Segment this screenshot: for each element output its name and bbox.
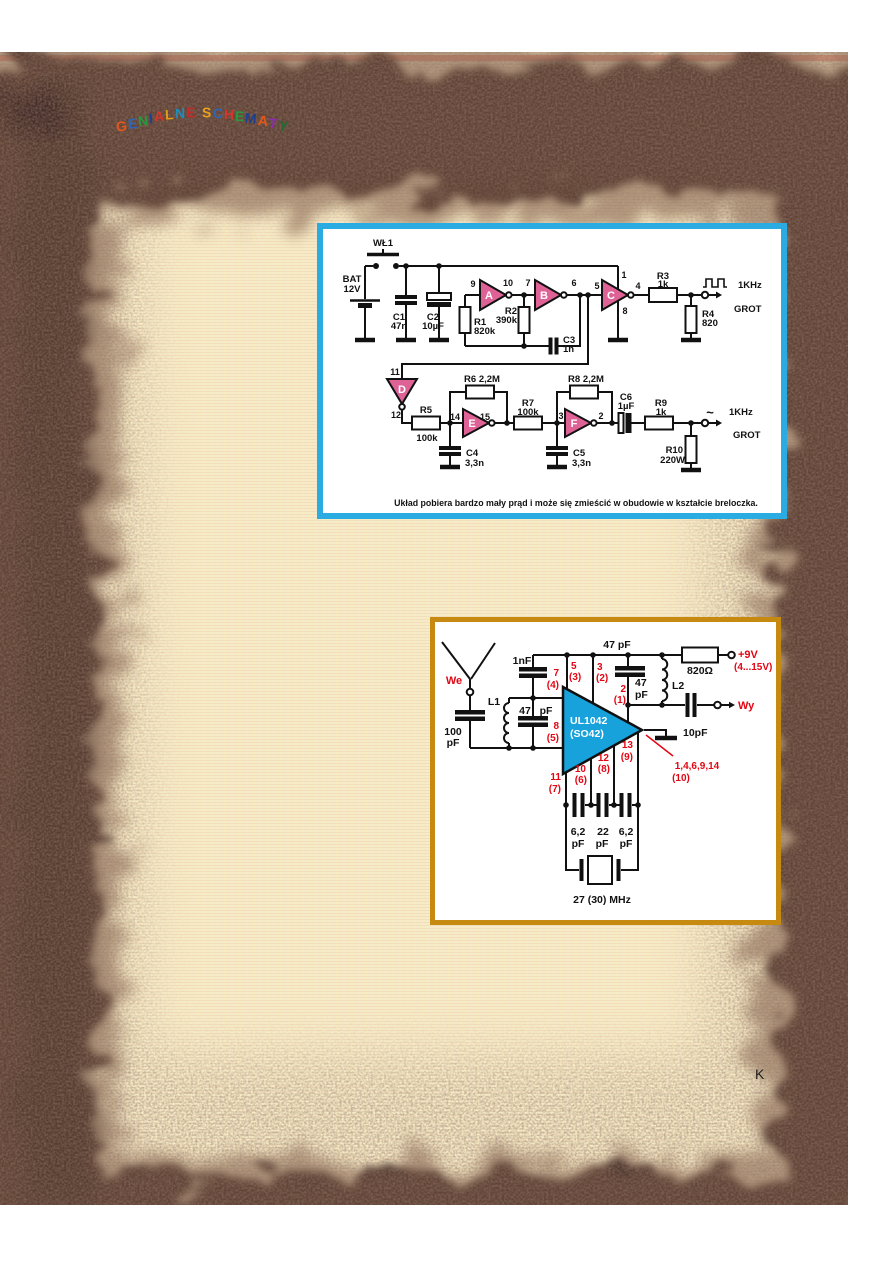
pin7-label: 7 bbox=[525, 278, 530, 288]
pin15-label: 15 bbox=[480, 412, 490, 422]
supply-terminal bbox=[728, 652, 735, 659]
output2-terminal bbox=[702, 420, 708, 426]
c6-value: 1µF bbox=[618, 401, 635, 412]
wl1-label: WŁ1 bbox=[373, 238, 394, 249]
magazine-logo: GENIALNE SCHEMATY bbox=[116, 110, 346, 150]
cs1-label: 6,2 bbox=[571, 826, 586, 838]
pin-12b: (8) bbox=[598, 764, 610, 775]
c1-value: 47n bbox=[391, 321, 408, 332]
rf-receiver-schematic-panel: We 100 pF L1 47 bbox=[430, 617, 781, 930]
c3-value: 1n bbox=[563, 344, 574, 355]
r9-value: 1k bbox=[656, 407, 667, 418]
r1-value: 820k bbox=[474, 326, 496, 337]
r10-value: 220W bbox=[660, 455, 685, 466]
sine-wave-icon: ~ bbox=[706, 405, 714, 420]
r6-label: R6 2,2M bbox=[464, 374, 500, 385]
oscillator-schematic-panel: BAT 12V WŁ1 C1 47n bbox=[317, 223, 787, 524]
pin4-label: 4 bbox=[635, 281, 640, 291]
pin-11: 11 bbox=[550, 772, 561, 783]
ic-package: (SO42) bbox=[570, 728, 604, 740]
r820-label: 820Ω bbox=[687, 665, 713, 677]
pin9-label: 9 bbox=[470, 279, 475, 289]
page-marker: K bbox=[755, 1066, 764, 1082]
c1n-label: 1nF bbox=[513, 655, 532, 667]
pin-13b: (9) bbox=[621, 752, 633, 763]
common-pins-label2: (10) bbox=[672, 773, 690, 784]
r5-value: 100k bbox=[416, 433, 438, 444]
c4-value: 3,3n bbox=[465, 458, 484, 469]
c5-value: 3,3n bbox=[572, 458, 591, 469]
inverter-d-letter: D bbox=[398, 384, 406, 396]
c100-unit: pF bbox=[447, 737, 460, 749]
cs2-unit: pF bbox=[596, 838, 609, 850]
inverter-b-letter: B bbox=[540, 290, 548, 302]
we-label: We bbox=[446, 675, 462, 687]
magazine-page-scan: GENIALNE SCHEMATY BAT 12V WŁ1 bbox=[0, 0, 893, 1263]
inverter-a-letter: A bbox=[485, 290, 493, 302]
freq-sin-label: 1KHz bbox=[729, 407, 753, 418]
c10-label: 10pF bbox=[683, 727, 708, 739]
l2-label: L2 bbox=[672, 680, 684, 692]
cs3-unit: pF bbox=[620, 838, 633, 850]
scanned-paper-area: GENIALNE SCHEMATY BAT 12V WŁ1 bbox=[0, 52, 848, 1205]
pin-2: 2 bbox=[620, 684, 626, 695]
c47r-unit: pF bbox=[635, 689, 648, 701]
pin-11b: (7) bbox=[549, 784, 561, 795]
c2-value: 10µF bbox=[422, 321, 444, 332]
r4-value: 820 bbox=[702, 318, 718, 329]
pin-12: 12 bbox=[598, 753, 610, 764]
inverter-f-letter: F bbox=[571, 418, 578, 430]
pin-7b: (4) bbox=[547, 680, 559, 691]
common-pins-label: 1,4,6,9,14 bbox=[675, 761, 720, 772]
we-input-terminal bbox=[467, 689, 474, 696]
wy-label: Wy bbox=[738, 700, 755, 712]
vplus-label: +9V bbox=[738, 649, 759, 661]
pin-2b: (1) bbox=[614, 695, 626, 706]
freq-sq-label: 1KHz bbox=[738, 280, 762, 291]
cs1-unit: pF bbox=[572, 838, 585, 850]
cs3-label: 6,2 bbox=[619, 826, 634, 838]
inverter-e-letter: E bbox=[468, 418, 475, 430]
c47l-label: 47 bbox=[519, 705, 531, 717]
r8-label: R8 2,2M bbox=[568, 374, 604, 385]
pin-3: 3 bbox=[597, 662, 603, 673]
pin14-label: 14 bbox=[450, 412, 460, 422]
pin1-label: 1 bbox=[621, 270, 626, 280]
xtal-label: 27 (30) MHz bbox=[573, 894, 631, 906]
wy-output-terminal bbox=[714, 702, 721, 709]
vrange-label: (4...15V) bbox=[734, 662, 772, 673]
schematic1-caption: Układ pobiera bardzo mały prąd i może si… bbox=[394, 498, 758, 508]
pin10-label: 10 bbox=[503, 278, 513, 288]
l1-label: L1 bbox=[488, 696, 500, 708]
grot-sq-label: GROT bbox=[734, 304, 762, 315]
pin-3b: (2) bbox=[596, 673, 608, 684]
pin2-label: 2 bbox=[598, 411, 603, 421]
pin12-label: 12 bbox=[391, 410, 401, 420]
pin11-label: 11 bbox=[390, 367, 400, 377]
pin5-label: 5 bbox=[594, 281, 599, 291]
pin8-label: 8 bbox=[622, 306, 627, 316]
grot-sin-label: GROT bbox=[733, 430, 761, 441]
pin-10b: (6) bbox=[575, 775, 587, 786]
c47r-label: 47 bbox=[635, 677, 647, 689]
pin-10: 10 bbox=[575, 764, 587, 775]
cs2-label: 22 bbox=[597, 826, 609, 838]
bat-value: 12V bbox=[344, 284, 362, 295]
pin-8: 8 bbox=[553, 721, 559, 732]
inverter-c-letter: C bbox=[607, 290, 615, 302]
c47top-label: 47 pF bbox=[603, 639, 631, 651]
output1-terminal bbox=[702, 292, 708, 298]
pin-7: 7 bbox=[553, 668, 559, 679]
pin-5b: (3) bbox=[569, 672, 581, 683]
ic-name: UL1042 bbox=[570, 715, 608, 727]
pin-8b: (5) bbox=[547, 733, 559, 744]
r3-value: 1k bbox=[658, 279, 669, 290]
c47l-unit: pF bbox=[540, 705, 553, 717]
pin3-label: 3 bbox=[558, 411, 563, 421]
pin6-label: 6 bbox=[571, 278, 576, 288]
pin-5: 5 bbox=[571, 661, 577, 672]
r5-label: R5 bbox=[420, 405, 433, 416]
r2-value: 390k bbox=[496, 315, 518, 326]
r7-value: 100k bbox=[517, 407, 539, 418]
pin-13: 13 bbox=[622, 740, 634, 751]
